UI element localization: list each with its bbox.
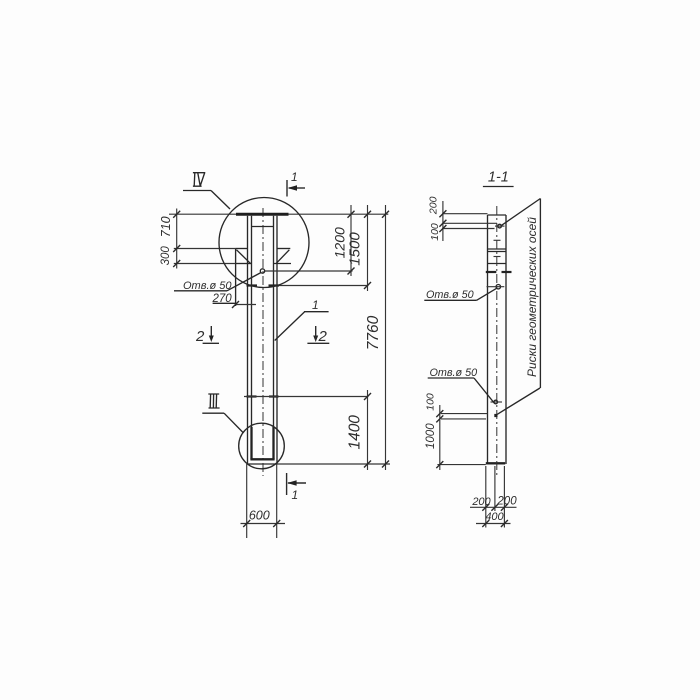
svg-text:Риски геометрических осей: Риски геометрических осей: [525, 217, 539, 377]
svg-text:200: 200: [471, 496, 491, 508]
svg-text:1000: 1000: [425, 423, 437, 449]
svg-text:300: 300: [160, 246, 172, 266]
svg-text:600: 600: [249, 509, 270, 523]
svg-text:710: 710: [159, 216, 173, 237]
svg-text:2: 2: [318, 328, 328, 345]
svg-text:200: 200: [427, 196, 439, 215]
svg-text:2: 2: [195, 328, 205, 345]
svg-text:1500: 1500: [346, 232, 363, 266]
svg-text:1200: 1200: [332, 227, 348, 258]
svg-text:Отв.ø 50: Отв.ø 50: [430, 367, 478, 379]
svg-text:1: 1: [312, 298, 319, 312]
svg-text:1400: 1400: [346, 415, 363, 450]
svg-text:7760: 7760: [365, 315, 382, 350]
svg-text:100: 100: [429, 223, 441, 241]
svg-text:1: 1: [292, 488, 299, 502]
svg-text:1: 1: [291, 170, 298, 184]
svg-text:1-1: 1-1: [488, 170, 509, 186]
svg-text:200: 200: [496, 496, 517, 508]
svg-text:100: 100: [424, 393, 436, 411]
svg-text:Отв.ø 50: Отв.ø 50: [426, 289, 474, 301]
svg-text:400: 400: [485, 511, 504, 523]
